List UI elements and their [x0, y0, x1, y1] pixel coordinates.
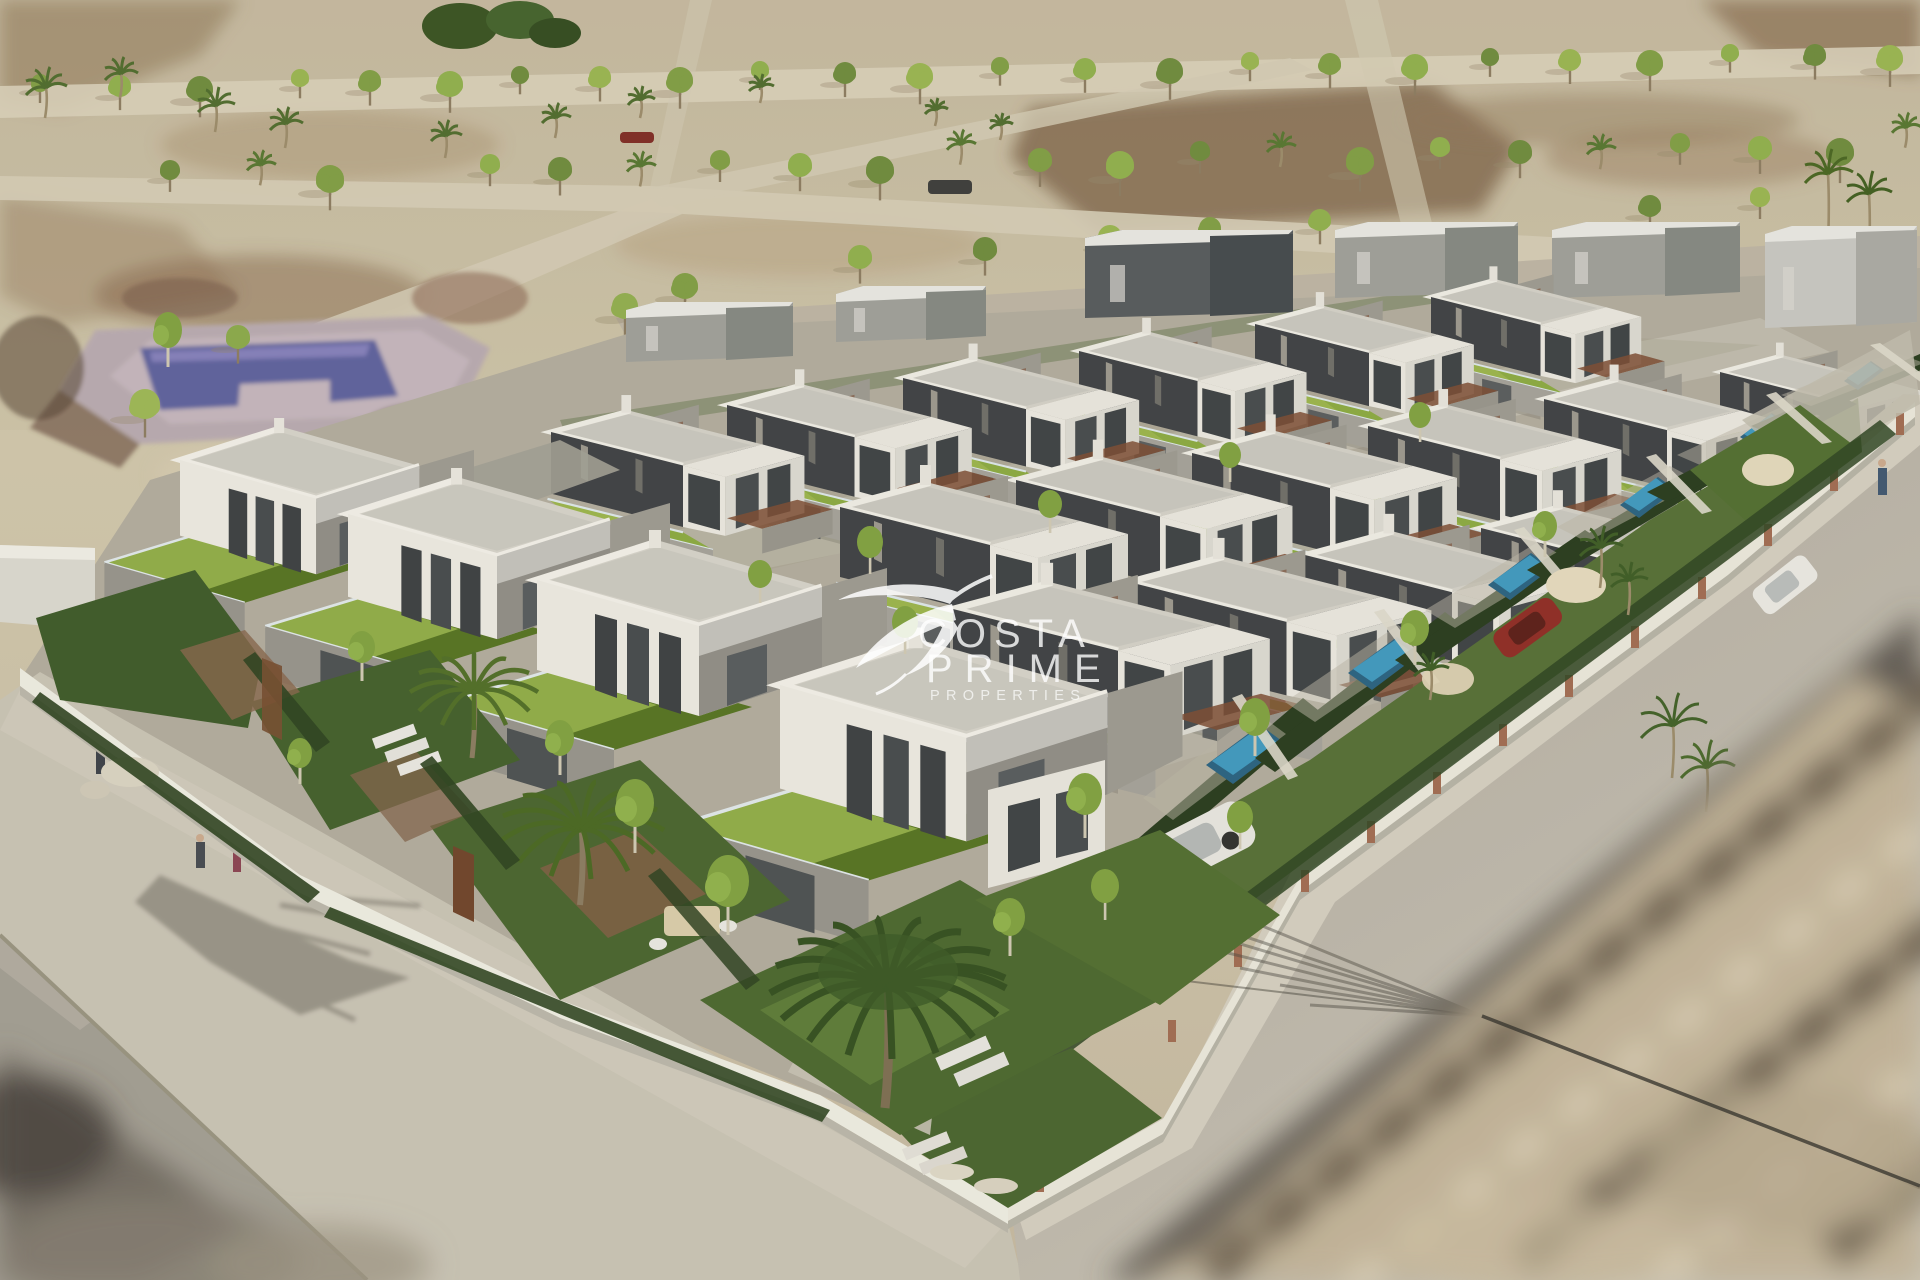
svg-text:PRIME: PRIME — [926, 647, 1113, 691]
svg-text:PROPERTIES: PROPERTIES — [930, 688, 1086, 704]
